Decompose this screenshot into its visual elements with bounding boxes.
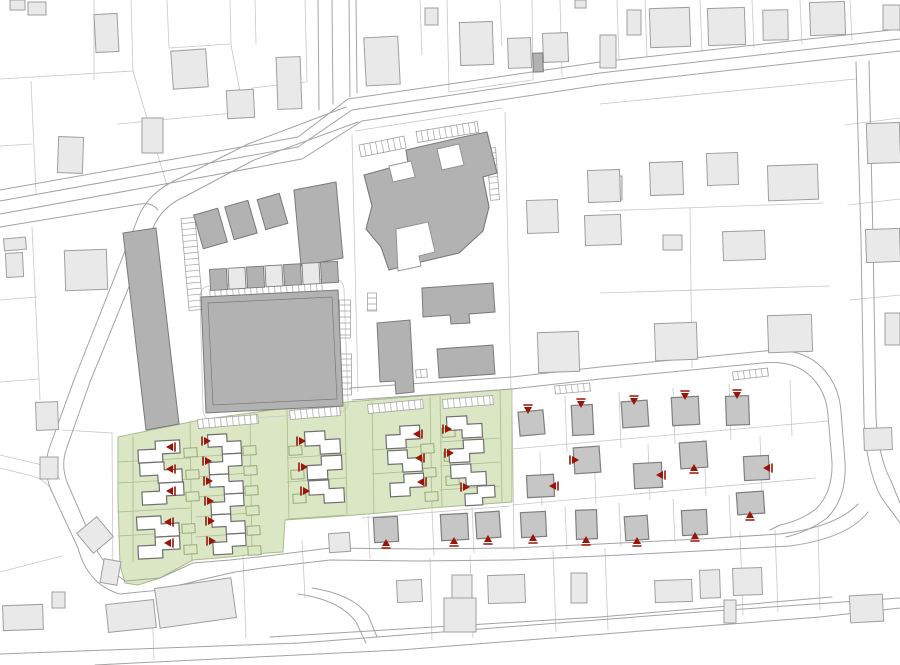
garage (244, 466, 257, 476)
garage (293, 494, 306, 504)
site-plan-canvas (0, 0, 900, 665)
context-building (459, 21, 493, 65)
context-building (767, 164, 818, 201)
context-building (706, 152, 738, 185)
context-building (649, 161, 683, 195)
context-building (809, 1, 845, 35)
garage (291, 470, 304, 480)
garage (421, 444, 434, 454)
garage (184, 448, 197, 458)
context-building (865, 228, 900, 262)
context-building (587, 169, 620, 202)
context-building (64, 249, 107, 290)
context-building (425, 8, 438, 25)
context-building (654, 322, 697, 360)
carport (283, 264, 301, 286)
estate-house (518, 410, 545, 436)
carport (246, 266, 264, 288)
context-building (663, 235, 682, 250)
garage (425, 492, 438, 502)
context-building (571, 573, 587, 603)
context-building (864, 428, 893, 451)
estate-house (571, 404, 594, 435)
garage (184, 545, 197, 555)
estate-house (671, 396, 699, 425)
estate-house (475, 511, 501, 539)
context-building (866, 122, 900, 163)
estate-house (679, 441, 708, 469)
estate-house (373, 516, 398, 542)
garage (248, 546, 261, 556)
context-building (452, 575, 472, 599)
context-building (700, 570, 721, 599)
context-building (537, 331, 579, 372)
row-house (437, 345, 495, 378)
context-building (849, 594, 883, 623)
garage (247, 526, 260, 536)
context-building (28, 2, 46, 15)
context-building (885, 313, 900, 345)
garage (186, 470, 199, 480)
row-house (533, 53, 544, 72)
context-building (724, 600, 736, 623)
garage (243, 446, 256, 456)
carport (209, 269, 227, 291)
context-building (488, 574, 526, 603)
context-building (142, 118, 163, 153)
context-building (707, 7, 745, 45)
garage (423, 468, 436, 478)
context-building (171, 49, 209, 89)
context-building (444, 598, 476, 632)
context-building (276, 57, 302, 110)
context-building (40, 457, 58, 479)
context-building (3, 604, 44, 630)
context-building (94, 13, 119, 52)
school-courtyard (437, 144, 464, 170)
context-building (584, 214, 621, 245)
estate-house (440, 513, 468, 540)
context-building (5, 253, 23, 278)
garage (289, 446, 302, 456)
context-building (106, 600, 157, 633)
garage (186, 492, 199, 502)
context-building (507, 38, 531, 69)
estate-house (520, 511, 546, 537)
context-building (4, 237, 27, 251)
carport (320, 261, 338, 283)
garage (245, 486, 258, 496)
carport (228, 267, 246, 289)
carport (265, 265, 283, 287)
context-building (543, 33, 569, 63)
context-building (52, 592, 65, 608)
context-building (575, 0, 586, 8)
garage (182, 524, 195, 534)
context-building (226, 89, 254, 118)
context-building (723, 230, 766, 260)
context-building (10, 0, 25, 10)
estate-house (576, 510, 598, 540)
carport (302, 263, 320, 285)
estate-house (736, 491, 764, 515)
estate-house (681, 509, 707, 535)
context-building (526, 199, 558, 233)
context-building (100, 559, 121, 586)
context-building (649, 7, 690, 47)
context-building (600, 35, 616, 68)
context-building (883, 5, 900, 30)
context-building (396, 579, 422, 602)
context-building (57, 137, 83, 174)
context-building (328, 532, 350, 552)
apartment-building (294, 182, 343, 266)
context-building (763, 10, 789, 40)
context-building (36, 402, 59, 431)
estate-house (624, 515, 649, 541)
context-building (655, 579, 693, 602)
context-building (627, 10, 641, 35)
estate-house (726, 396, 750, 426)
context-building (364, 36, 400, 86)
site-plan-map (0, 0, 900, 665)
context-building (767, 314, 812, 353)
estate-house (621, 400, 649, 428)
paved-court (201, 290, 343, 413)
context-building (733, 568, 763, 596)
garage (246, 506, 259, 516)
